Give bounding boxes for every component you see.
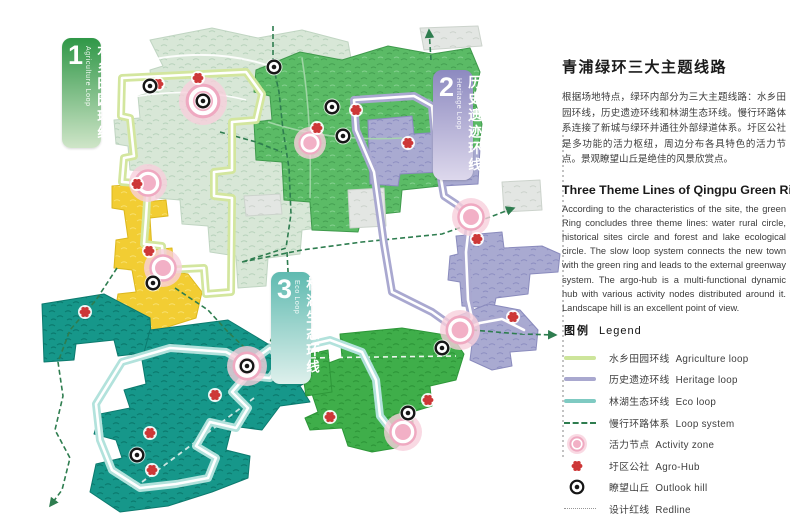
legend-item-agro-hub: 圩区公社Agro-Hub — [564, 455, 786, 477]
outlook-hill-marker — [129, 447, 146, 464]
legend-label-zh: 活力节点 — [609, 440, 649, 451]
agro-hub-marker — [470, 232, 484, 246]
agro-hub-marker — [349, 103, 363, 117]
legend-header: 图例Legend — [564, 322, 786, 338]
legend-label-zh: 设计红线 — [609, 505, 649, 516]
region-gray-urban-3 — [502, 180, 542, 212]
legend-item-heritage-loop: 历史遗迹环线Heritage loop — [564, 369, 786, 391]
badge-label-en: Heritage Loop — [455, 78, 462, 130]
legend-item-loop-system: 慢行环路体系Loop system — [564, 412, 786, 434]
legend-label-en: Loop system — [676, 419, 735, 430]
legend: 图例Legend 水乡田园环线Agriculture loop历史遗迹环线Her… — [564, 322, 786, 520]
description-zh: 根据场地特点，绿环内部分为三大主题线路：水乡田园环线，历史遗迹环线和林湖生态环线… — [562, 90, 786, 168]
theme-badge-2: 2Heritage Loop历史遗迹环线 — [433, 70, 473, 180]
legend-item-activity-zone: 活力节点Activity zone — [564, 433, 786, 455]
agro-hub-marker — [78, 305, 92, 319]
line-swatch-icon — [564, 356, 598, 360]
info-panel: 青浦绿环三大主题线路 根据场地特点，绿环内部分为三大主题线路：水乡田园环线，历史… — [562, 56, 786, 315]
badge-number: 3 — [277, 277, 292, 303]
outlook-hill-marker — [324, 99, 341, 116]
line-swatch-icon — [564, 377, 598, 381]
region-gray-urban-1 — [420, 26, 482, 50]
legend-item-label: 设计红线Redline — [609, 502, 691, 516]
outlook-hill-marker — [145, 275, 162, 292]
legend-item-label: 活力节点Activity zone — [609, 437, 714, 451]
green-ring-poster: 1Agriculture Loop水乡田园环线2Heritage Loop历史遗… — [0, 0, 790, 522]
agro-hub-marker — [310, 121, 324, 135]
activity-zone-marker — [452, 198, 490, 236]
agro-hub-marker — [142, 244, 156, 258]
legend-label-zh: 圩区公社 — [609, 462, 649, 473]
legend-label-en: Redline — [655, 505, 690, 516]
outlook-hill-marker — [400, 405, 417, 422]
legend-header-en: Legend — [599, 325, 642, 337]
legend-label-en: Agro-Hub — [655, 462, 699, 473]
legend-label-zh: 瞭望山丘 — [609, 483, 649, 494]
agro-hub-marker — [130, 177, 144, 191]
agro-hub-marker — [145, 463, 159, 477]
legend-label-en: Outlook hill — [655, 483, 707, 494]
outlook-hill-marker — [239, 358, 256, 375]
region-gray-urban-4 — [244, 194, 282, 216]
legend-label-zh: 水乡田园环线 — [609, 354, 670, 365]
legend-label-zh: 林湖生态环线 — [609, 397, 670, 408]
badge-label-en: Agriculture Loop — [84, 46, 91, 107]
outlook-swatch-icon — [564, 476, 598, 498]
legend-item-label: 瞭望山丘Outlook hill — [609, 480, 707, 494]
page-title-zh: 青浦绿环三大主题线路 — [562, 56, 786, 77]
activity-swatch-icon — [564, 433, 598, 455]
legend-label-en: Agriculture loop — [676, 354, 749, 365]
theme-badge-3: 3Eco Loop林湖生态环线 — [271, 272, 311, 384]
badge-label-zh: 历史遗迹环线 — [463, 75, 483, 174]
agro-hub-marker — [143, 426, 157, 440]
legend-item-outlook-hill: 瞭望山丘Outlook hill — [564, 477, 786, 499]
outlook-hill-marker — [335, 128, 352, 145]
legend-header-zh: 图例 — [564, 325, 590, 337]
badge-number: 1 — [68, 43, 83, 69]
agro-hub-marker — [506, 310, 520, 324]
badge-number: 2 — [439, 75, 454, 101]
legend-item-label: 历史遗迹环线Heritage loop — [609, 372, 738, 386]
legend-rows: 水乡田园环线Agriculture loop历史遗迹环线Heritage loo… — [564, 347, 786, 520]
dash-swatch-icon — [564, 422, 598, 424]
legend-item-label: 圩区公社Agro-Hub — [609, 459, 700, 473]
legend-item-label: 林湖生态环线Eco loop — [609, 394, 716, 408]
redline-swatch-icon — [564, 508, 598, 509]
agro-hub-marker — [421, 393, 435, 407]
legend-item-label: 水乡田园环线Agriculture loop — [609, 351, 748, 365]
badge-label-zh: 林湖生态环线 — [301, 277, 321, 376]
agro-hub-marker — [191, 71, 205, 85]
outlook-hill-marker — [142, 78, 159, 95]
agro-hub-marker — [208, 388, 222, 402]
legend-label-en: Activity zone — [655, 440, 714, 451]
agro-hub-marker — [323, 410, 337, 424]
page-title-en: Three Theme Lines of Qingpu Green Ring — [562, 183, 786, 197]
description-en: According to the characteristics of the … — [562, 202, 786, 315]
line-swatch-icon — [564, 399, 598, 403]
legend-label-en: Heritage loop — [676, 375, 738, 386]
agro-swatch-icon — [564, 455, 598, 477]
badge-label-zh: 水乡田园环线 — [92, 43, 112, 142]
agro-hub-marker — [401, 136, 415, 150]
legend-item-redline: 设计红线Redline — [564, 498, 786, 520]
legend-label-zh: 历史遗迹环线 — [609, 375, 670, 386]
outlook-hill-marker — [195, 93, 212, 110]
theme-badge-1: 1Agriculture Loop水乡田园环线 — [62, 38, 101, 148]
outlook-hill-marker — [266, 59, 283, 76]
legend-label-zh: 慢行环路体系 — [609, 419, 670, 430]
legend-label-en: Eco loop — [676, 397, 717, 408]
legend-item-agriculture-loop: 水乡田园环线Agriculture loop — [564, 347, 786, 369]
legend-item-eco-loop: 林湖生态环线Eco loop — [564, 390, 786, 412]
legend-item-label: 慢行环路体系Loop system — [609, 416, 734, 430]
badge-label-en: Eco Loop — [293, 280, 300, 314]
outlook-hill-marker — [434, 340, 451, 357]
